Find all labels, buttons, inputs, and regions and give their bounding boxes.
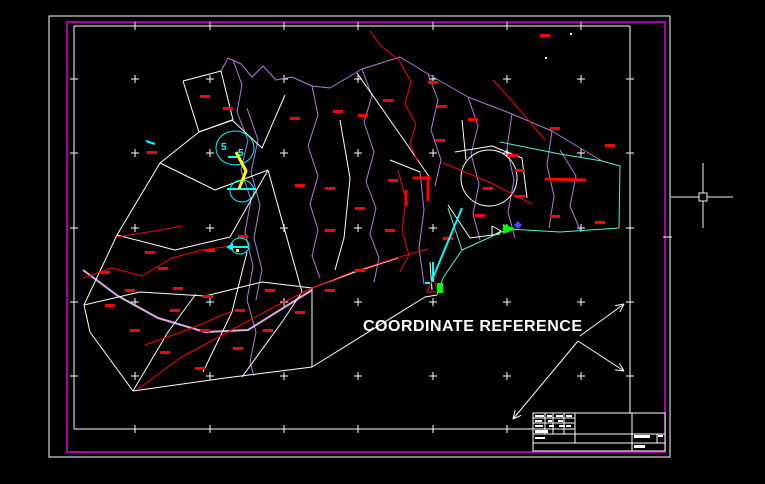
title-block-text-mark — [658, 435, 663, 437]
red-dash — [125, 289, 135, 292]
red-dash — [265, 289, 275, 292]
red-dash — [195, 367, 205, 370]
cyan-glyph: 5 — [221, 142, 227, 153]
title-block-text-mark — [558, 420, 563, 422]
title-block-text-mark — [535, 420, 542, 422]
red-dash — [105, 304, 115, 307]
drawing-scene: 55COORDINATE REFERENCE — [0, 0, 765, 484]
title-block-text-mark — [547, 415, 552, 417]
green-rect-marker — [437, 283, 443, 293]
speck — [545, 57, 547, 59]
red-dash — [147, 151, 157, 154]
red-dash — [158, 267, 168, 270]
red-dash — [383, 99, 393, 102]
red-dash — [468, 118, 478, 121]
red-dash — [203, 295, 213, 298]
red-dash — [223, 107, 233, 110]
red-dash — [173, 287, 183, 290]
red-dash — [550, 127, 560, 130]
red-dash — [515, 169, 525, 172]
red-dash — [333, 110, 343, 113]
title-block-text-mark — [549, 425, 554, 427]
speck — [570, 33, 572, 35]
red-dash — [428, 81, 438, 84]
red-dash — [483, 187, 493, 190]
red-dash — [160, 351, 170, 354]
title-block-text-mark — [535, 437, 545, 439]
title-block — [533, 413, 665, 451]
red-dash — [263, 329, 273, 332]
title-block-text-mark — [566, 425, 571, 427]
red-dash — [388, 179, 398, 182]
title-block-text-mark — [634, 445, 645, 448]
red-dash — [145, 251, 155, 254]
red-dash — [295, 184, 305, 187]
red-dash — [540, 34, 550, 37]
red-dash — [100, 271, 110, 274]
red-dash — [435, 139, 445, 142]
yellow-dot — [236, 249, 239, 252]
red-dash — [385, 229, 395, 232]
title-block-text-mark — [566, 415, 572, 417]
red-dash — [325, 187, 335, 190]
title-block-text-mark — [559, 425, 565, 427]
red-dash — [170, 309, 180, 312]
red-dash — [515, 195, 525, 198]
red-dash — [437, 105, 447, 108]
red-dash — [325, 289, 335, 292]
red-dash — [205, 249, 215, 252]
title-block-text-mark — [634, 435, 650, 438]
red-dash — [508, 154, 518, 157]
red-dash — [475, 214, 485, 217]
cad-viewport[interactable]: 55COORDINATE REFERENCE — [0, 0, 765, 484]
red-dash — [295, 311, 305, 314]
title-block-text-mark — [535, 425, 543, 427]
red-dash — [233, 347, 243, 350]
red-dash — [325, 229, 335, 232]
title-block-text-mark — [535, 430, 548, 433]
red-dash — [605, 144, 615, 147]
pickbox[interactable] — [699, 193, 707, 201]
title-block-text-mark — [535, 415, 544, 417]
title-block-text-mark — [556, 415, 563, 417]
red-dash — [358, 114, 368, 117]
red-dash — [130, 329, 140, 332]
red-dash — [595, 221, 605, 224]
red-dash — [550, 215, 560, 218]
annotation: COORDINATE REFERENCE — [363, 318, 583, 335]
background — [0, 0, 765, 484]
red-dash — [355, 269, 365, 272]
red-dash — [200, 329, 210, 332]
coordinate-reference-label: COORDINATE REFERENCE — [363, 318, 583, 335]
map-polyline — [545, 179, 586, 180]
red-dash — [355, 207, 365, 210]
red-dash — [290, 117, 300, 120]
red-dash — [235, 309, 245, 312]
title-block-text-mark — [548, 420, 552, 422]
red-dash — [200, 95, 210, 98]
